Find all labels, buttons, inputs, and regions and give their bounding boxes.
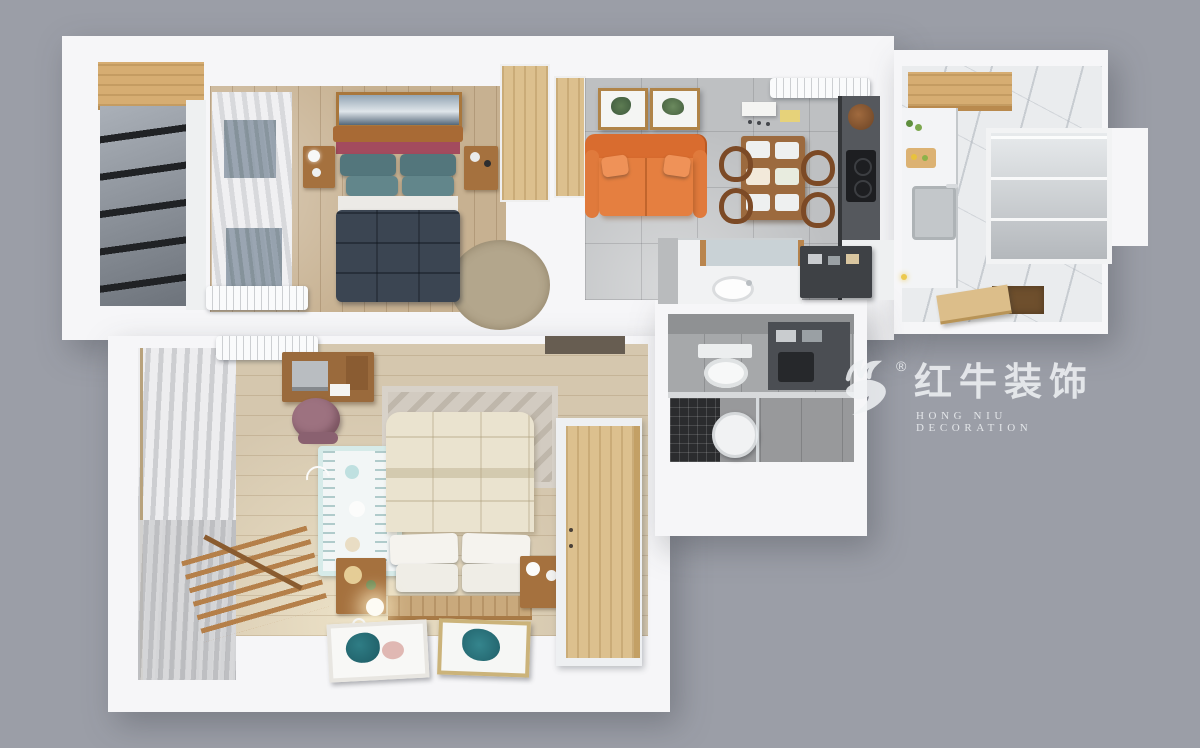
sofa-throw-pillow-right (663, 154, 692, 177)
kids-bed-foot-bench (388, 596, 532, 620)
plant-artwork-2 (650, 88, 700, 130)
sofa-throw-pillow-left (601, 154, 630, 177)
master-bed-maroon-cushion (336, 142, 460, 154)
shower-round-basin (712, 412, 758, 458)
place-setting (775, 168, 799, 185)
vanity-floor-tile (658, 238, 678, 304)
brand-name-en: HONG NIU DECORATION (916, 410, 1118, 434)
master-bed-navy-duvet (336, 210, 460, 302)
toilet-bowl (704, 358, 748, 388)
balcony-black-frame-window (100, 106, 186, 306)
laptop (292, 361, 328, 391)
vanity-tap (746, 280, 752, 286)
cutting-board (906, 148, 936, 168)
floor-artwork-1 (327, 619, 430, 682)
fruit (922, 155, 928, 161)
wardrobe-handle (569, 544, 573, 548)
snack-plate (344, 566, 362, 584)
master-round-jute-rug (450, 240, 550, 330)
floor-artwork-1-pink-blob (382, 641, 405, 660)
kitchen-window (986, 128, 1112, 264)
notebook (330, 384, 350, 396)
master-pillow-back-left (340, 154, 396, 176)
dining-chair (719, 146, 753, 182)
brand-watermark: ® 红牛装饰 HONG NIU DECORATION (838, 352, 1118, 442)
sofa-backrest (585, 134, 707, 160)
crib-toy (345, 465, 359, 479)
master-left-vase (312, 168, 321, 177)
entry-console (800, 246, 872, 298)
entry-light-dot (901, 274, 907, 280)
sofa-armrest-right (693, 150, 707, 218)
place-setting (775, 194, 799, 211)
shower-glass-panel (756, 398, 759, 462)
small-plant (366, 580, 376, 590)
kitchen-upper-cabinet (908, 72, 1012, 111)
washer-top (778, 352, 814, 382)
kids-pillow-back-left (389, 533, 458, 565)
toilet-tank (698, 344, 752, 358)
crib-toy (345, 537, 360, 552)
kitchen-faucet (946, 184, 958, 188)
hall-cabinet-top (554, 76, 586, 198)
master-seascape-artwork (336, 92, 462, 128)
desk (282, 352, 374, 402)
sofa-armrest-left (585, 150, 599, 218)
floor-artwork-2 (437, 618, 531, 677)
bull-logo-icon (838, 356, 902, 422)
master-nightstand-right (464, 146, 498, 190)
master-pillow-front-right (402, 176, 454, 196)
burner (854, 180, 872, 198)
floor-ball-lamp (366, 598, 384, 616)
vanity-mirror (700, 240, 804, 266)
kids-pillow-front-right (462, 564, 524, 592)
coffee-machine (848, 104, 874, 130)
floor-artwork-2-teal-blob (462, 628, 501, 661)
master-bedroom-ac-unit (206, 286, 308, 310)
master-pillow-back-right (400, 154, 456, 176)
master-right-clock (484, 160, 491, 167)
kitchen-sink (912, 186, 956, 240)
dining-chair (719, 188, 753, 224)
key-hook (748, 120, 752, 124)
master-curtain-blue-panel-1 (224, 120, 276, 178)
master-curtain-blue-panel-2 (226, 228, 282, 290)
floor-artwork-1-teal-blob (345, 632, 381, 664)
living-room-ac-unit (770, 78, 870, 98)
master-right-speaker (470, 152, 480, 162)
plant-artwork-1-leaves (611, 97, 631, 115)
key-hook (757, 121, 761, 125)
dining-chair (801, 150, 835, 186)
bull-logo-body (846, 380, 886, 415)
towel (802, 330, 822, 342)
master-bed-headboard (333, 126, 463, 142)
console-item (828, 256, 840, 265)
plant-artwork-2-leaves (662, 98, 684, 115)
towel (776, 330, 796, 342)
key-hook (766, 122, 770, 126)
brand-name-cn: 红牛装饰 (914, 364, 1094, 402)
console-item (846, 254, 859, 264)
bedside-lamp (526, 562, 540, 576)
burner (854, 158, 872, 176)
kids-duvet-fold (386, 470, 534, 478)
entry-wall-box (780, 110, 800, 122)
apartment-3d-floorplan-render: ® 红牛装饰 HONG NIU DECORATION (0, 0, 1200, 748)
console-item (808, 254, 822, 264)
master-wardrobe-top (500, 64, 550, 202)
kitchen-bottle (915, 124, 922, 131)
crib-toy (349, 501, 365, 517)
desk-chair-backrest (298, 432, 338, 444)
kitchen-bottle (906, 120, 913, 127)
wardrobe-handle (569, 528, 573, 532)
registered-mark: ® (896, 358, 906, 374)
entry-wall-shelf (742, 102, 776, 116)
kids-room-door-threshold (545, 336, 625, 354)
place-setting (775, 142, 799, 159)
plant-artwork-1 (598, 88, 648, 130)
kids-pillow-front-left (396, 564, 458, 592)
balcony-window-sill (186, 100, 206, 310)
dining-chair (801, 192, 835, 228)
master-left-lamp (308, 150, 320, 162)
master-pillow-front-left (346, 176, 398, 196)
kids-wardrobe-door (566, 426, 640, 658)
cooktop (846, 150, 876, 202)
fruit (911, 154, 917, 160)
